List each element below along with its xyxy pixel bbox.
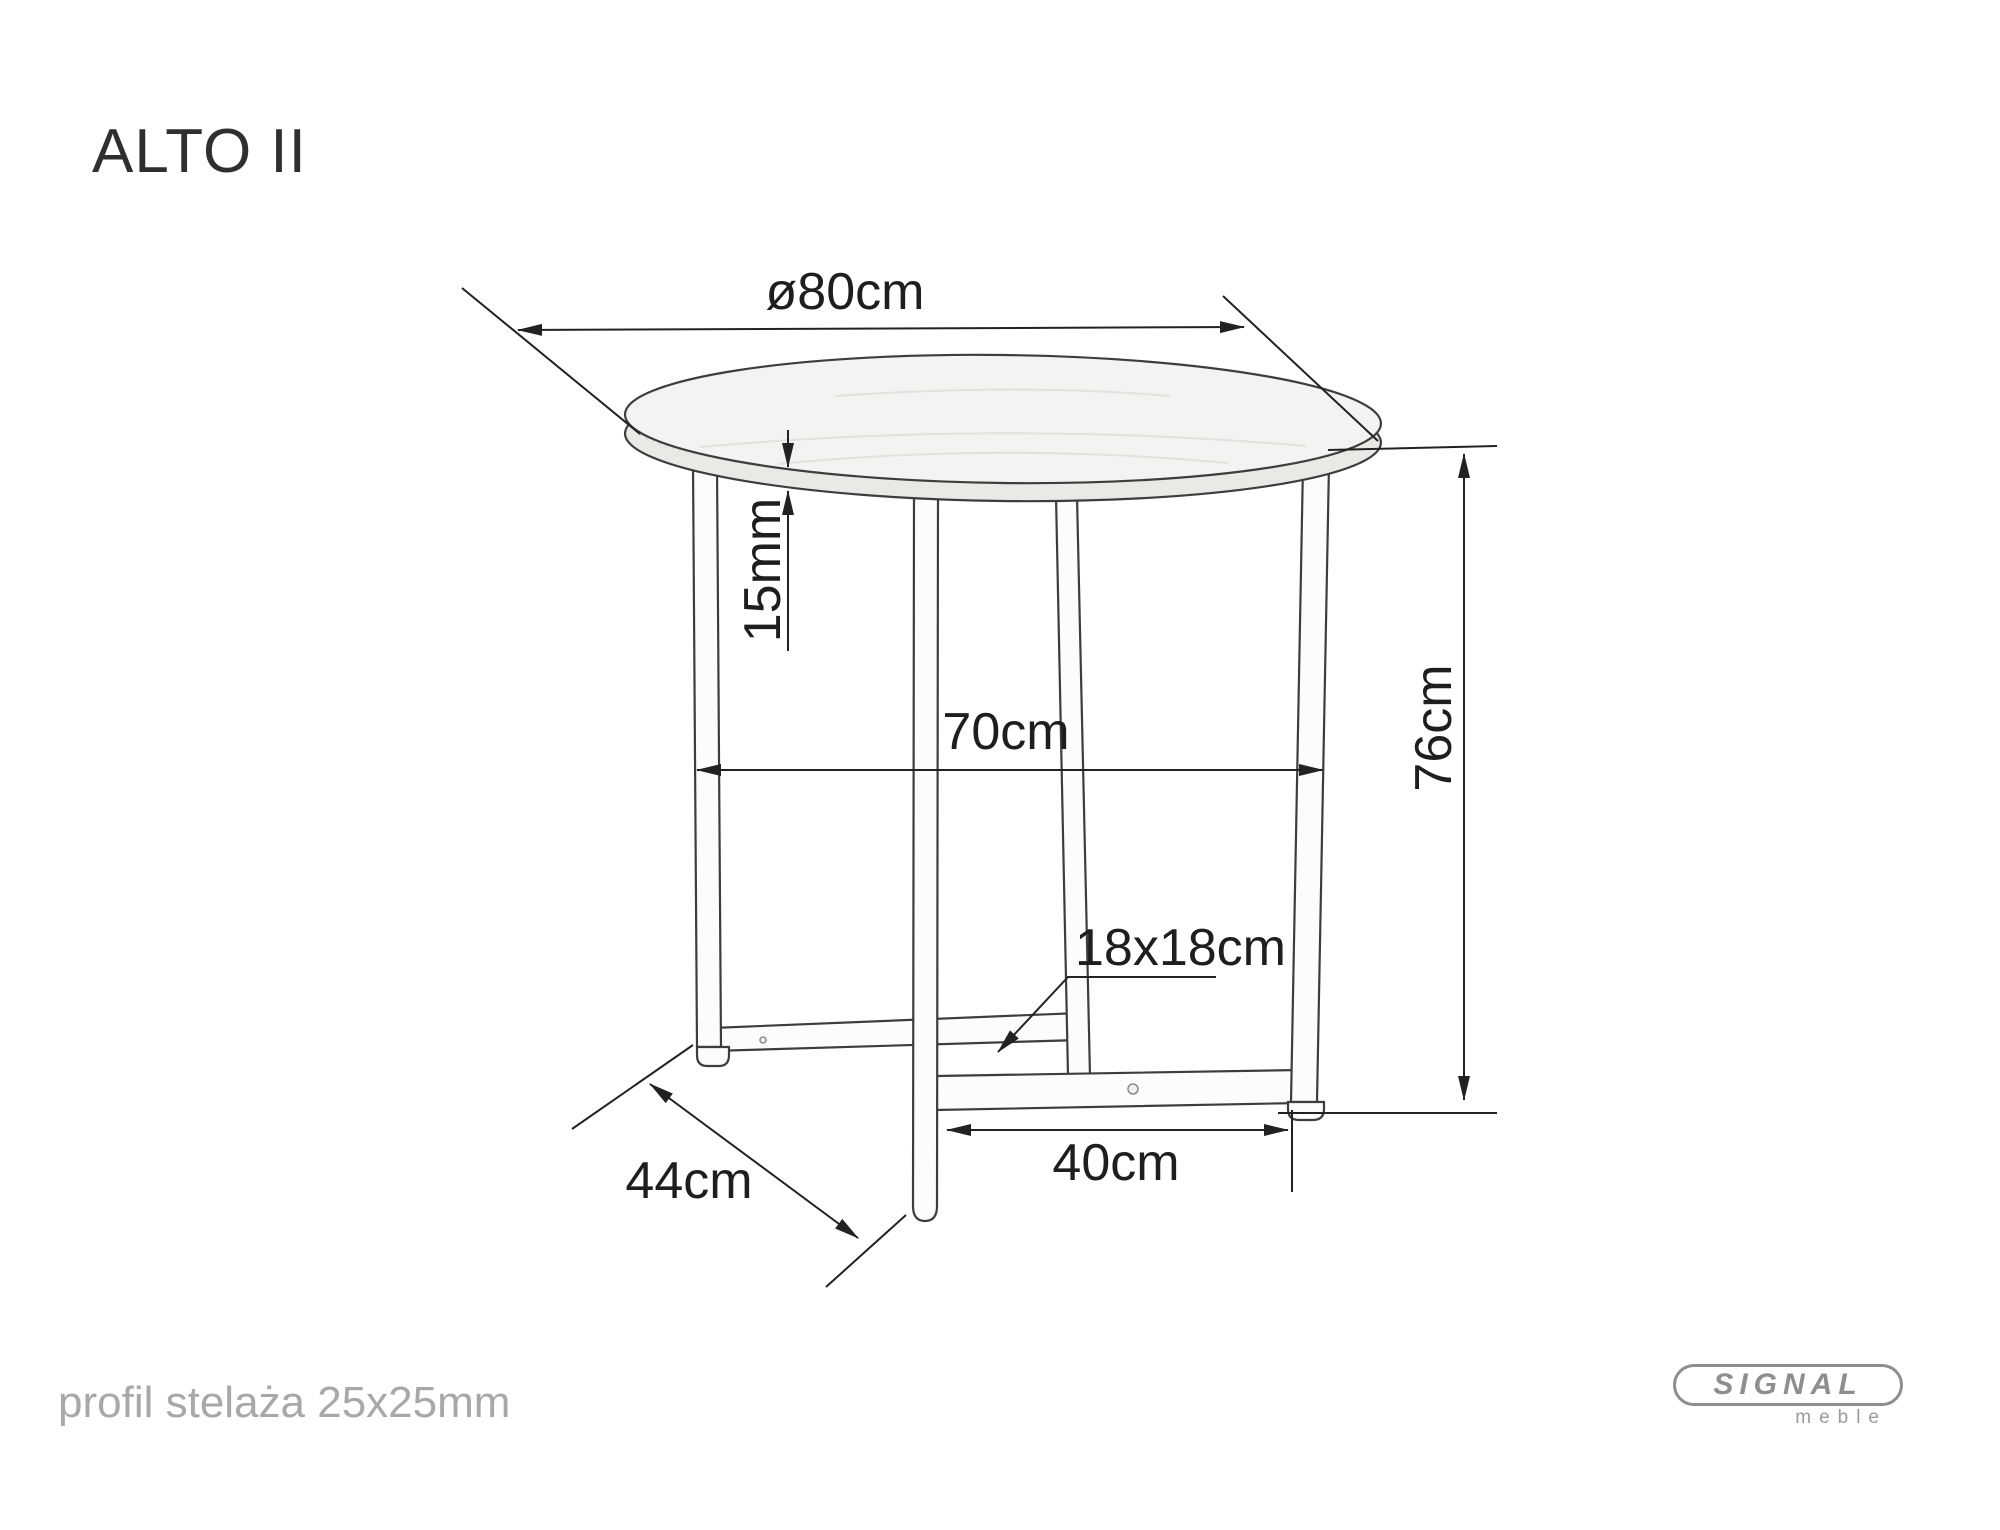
leg-profile-label: 18x18cm: [1075, 919, 1286, 977]
height-label: 76cm: [1405, 664, 1463, 791]
table-leg-front: [913, 494, 938, 1221]
thickness-label: 15mm: [734, 498, 792, 642]
frame-profile-note: profil stelaża 25x25mm: [58, 1378, 510, 1428]
depth-label: 44cm: [625, 1152, 752, 1210]
frame-bottom-rail-front: [936, 1070, 1299, 1110]
logo-brand-text: SIGNAL: [1713, 1370, 1862, 1400]
table-technical-drawing: ø80cm 15mm 70cm 76cm 18x18cm: [0, 0, 2000, 1530]
table-leg-right: [1291, 464, 1329, 1102]
base-bar-label: 40cm: [1052, 1134, 1179, 1192]
logo-tagline: meble: [1673, 1407, 1905, 1429]
dimension-depth: 44cm: [572, 1045, 906, 1287]
extension-line: [572, 1045, 693, 1129]
frame-width-label: 70cm: [942, 703, 1069, 761]
dimension-line: [518, 327, 1244, 330]
table-leg-right-foot: [1288, 1102, 1324, 1120]
table-leg-center-rear: [1056, 496, 1090, 1076]
screw-dot: [760, 1037, 766, 1043]
technical-sheet: ALTO II: [0, 0, 2000, 1530]
diameter-label: ø80cm: [766, 263, 925, 321]
table-leg-left-foot: [697, 1047, 729, 1066]
dimension-frame-width: 70cm: [697, 703, 1323, 770]
frame-bottom-rail-left: [712, 1013, 1079, 1051]
table-leg-left: [693, 464, 721, 1047]
extension-line: [462, 288, 640, 434]
screw-dot: [1128, 1084, 1138, 1094]
extension-line: [826, 1215, 906, 1287]
table-top: [624, 350, 1382, 505]
brand-logo: SIGNAL meble: [1673, 1364, 1905, 1429]
dimension-base-bar: 40cm: [947, 1110, 1292, 1192]
logo-pill: SIGNAL: [1673, 1364, 1903, 1406]
